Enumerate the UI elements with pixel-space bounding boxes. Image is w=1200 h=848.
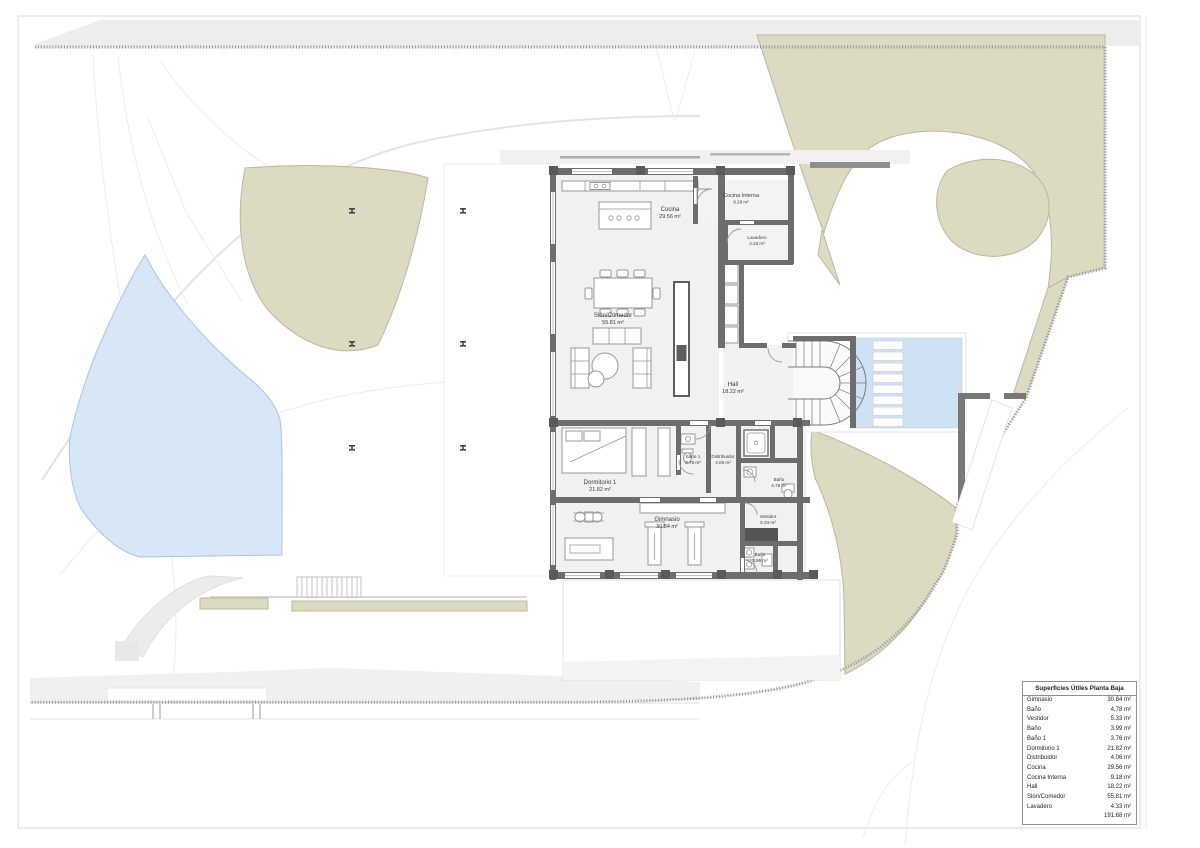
table-row: Baño 13.76 m² xyxy=(1023,735,1136,745)
label-dormitorio1-area: 21.82 m² xyxy=(589,487,611,493)
green-island-top-right xyxy=(937,159,1049,256)
kitchen-counter xyxy=(562,181,698,191)
fireplace xyxy=(674,282,689,396)
label-bano1: Baño 1 xyxy=(686,454,701,459)
hall-wardrobe xyxy=(724,264,738,343)
ramp-landing xyxy=(115,641,139,661)
curved-ramp xyxy=(122,576,243,657)
vestidor-wardrobe xyxy=(744,528,778,541)
roof-overhang xyxy=(500,150,910,168)
label-cocina-area: 29.56 m² xyxy=(659,214,681,220)
label-distribuidor: Distribuidor xyxy=(711,454,735,459)
exterior-steps xyxy=(297,577,361,597)
table-row: Baño3.99 m² xyxy=(1023,725,1136,735)
label-cocina-interna: Cocina Interna xyxy=(723,193,760,199)
side-table xyxy=(588,371,604,387)
label-vestidor: Vestidor xyxy=(760,514,777,519)
table-row: Cocina29.56 m² xyxy=(1023,764,1136,774)
site-plan-drawing: Cocina 29.56 m² Cocina Interna 9.18 m² L… xyxy=(0,0,1200,848)
label-hall-area: 18.22 m² xyxy=(722,389,744,395)
table-row: Slón/Comedor55.81 m² xyxy=(1023,793,1136,803)
table-total-row: 191.68 m² xyxy=(1023,812,1136,822)
kitchen-island xyxy=(599,202,651,229)
label-lavadero: Lavadero xyxy=(747,235,767,240)
label-bano-gym: Baño xyxy=(755,552,766,557)
driveway-crossing xyxy=(107,688,267,702)
label-salon: Slón/Comedor xyxy=(594,313,632,319)
sideboard xyxy=(593,328,641,344)
table-row: Gimnasio30.84 m² xyxy=(1023,696,1136,706)
green-strip-1 xyxy=(200,598,268,609)
bed xyxy=(562,428,626,473)
label-vestidor-area: 5.33 m² xyxy=(760,520,776,525)
table-row: Baño4.78 m² xyxy=(1023,706,1136,716)
label-bano-suite: Baño xyxy=(774,477,785,482)
table-row: Dormitorio 121.82 m² xyxy=(1023,744,1136,754)
green-wedge xyxy=(818,230,840,285)
green-strip-2 xyxy=(292,601,527,611)
west-porch xyxy=(444,164,554,576)
green-sliver-fence xyxy=(1014,277,1068,398)
label-gimnasio: Gimnasio xyxy=(654,517,680,523)
label-cocina-interna-area: 9.18 m² xyxy=(733,200,749,205)
label-gimnasio-area: 30.84 m² xyxy=(656,524,678,530)
label-bano-gym-area: 3.99 m² xyxy=(752,558,768,563)
label-salon-area: 55.81 m² xyxy=(602,320,624,326)
pool xyxy=(852,338,962,428)
table-row: Distribuidor4.06 m² xyxy=(1023,754,1136,764)
area-table-rows: Gimnasio30.84 m² Baño4.78 m² Vestidor5.3… xyxy=(1023,695,1136,824)
label-bano1-area: 3.76 m² xyxy=(685,460,701,465)
label-lavadero-area: 4.33 m² xyxy=(749,241,765,246)
label-cocina: Cocina xyxy=(661,207,680,213)
sofa-right xyxy=(633,348,651,388)
label-distribuidor-area: 4.06 m² xyxy=(715,460,731,465)
road-band-bottom xyxy=(30,703,700,719)
table-row: Lavadero4.33 m² xyxy=(1023,803,1136,813)
sofa-left xyxy=(571,348,589,388)
label-bano-suite-area: 4.78 m² xyxy=(771,483,787,488)
label-dormitorio1: Dormitorio 1 xyxy=(584,480,617,486)
label-hall: Hall xyxy=(728,382,738,388)
table-total-value: 191.68 m² xyxy=(1104,813,1131,821)
table-row: Hall18.22 m² xyxy=(1023,783,1136,793)
area-table-title: Superficies Útiles Planta Baja xyxy=(1022,681,1137,696)
garden-wall-top xyxy=(958,393,990,399)
green-area-left xyxy=(240,166,428,351)
table-row: Vestidor5.33 m² xyxy=(1023,715,1136,725)
shower-room xyxy=(744,430,768,456)
floor-plan-sheet: Cocina 29.56 m² Cocina Interna 9.18 m² L… xyxy=(0,0,1200,848)
garden-wall-cap xyxy=(1004,393,1026,399)
table-row: Cocina Interna9.18 m² xyxy=(1023,774,1136,784)
area-table: Superficies Útiles Planta Baja Gimnasio3… xyxy=(1022,681,1137,825)
